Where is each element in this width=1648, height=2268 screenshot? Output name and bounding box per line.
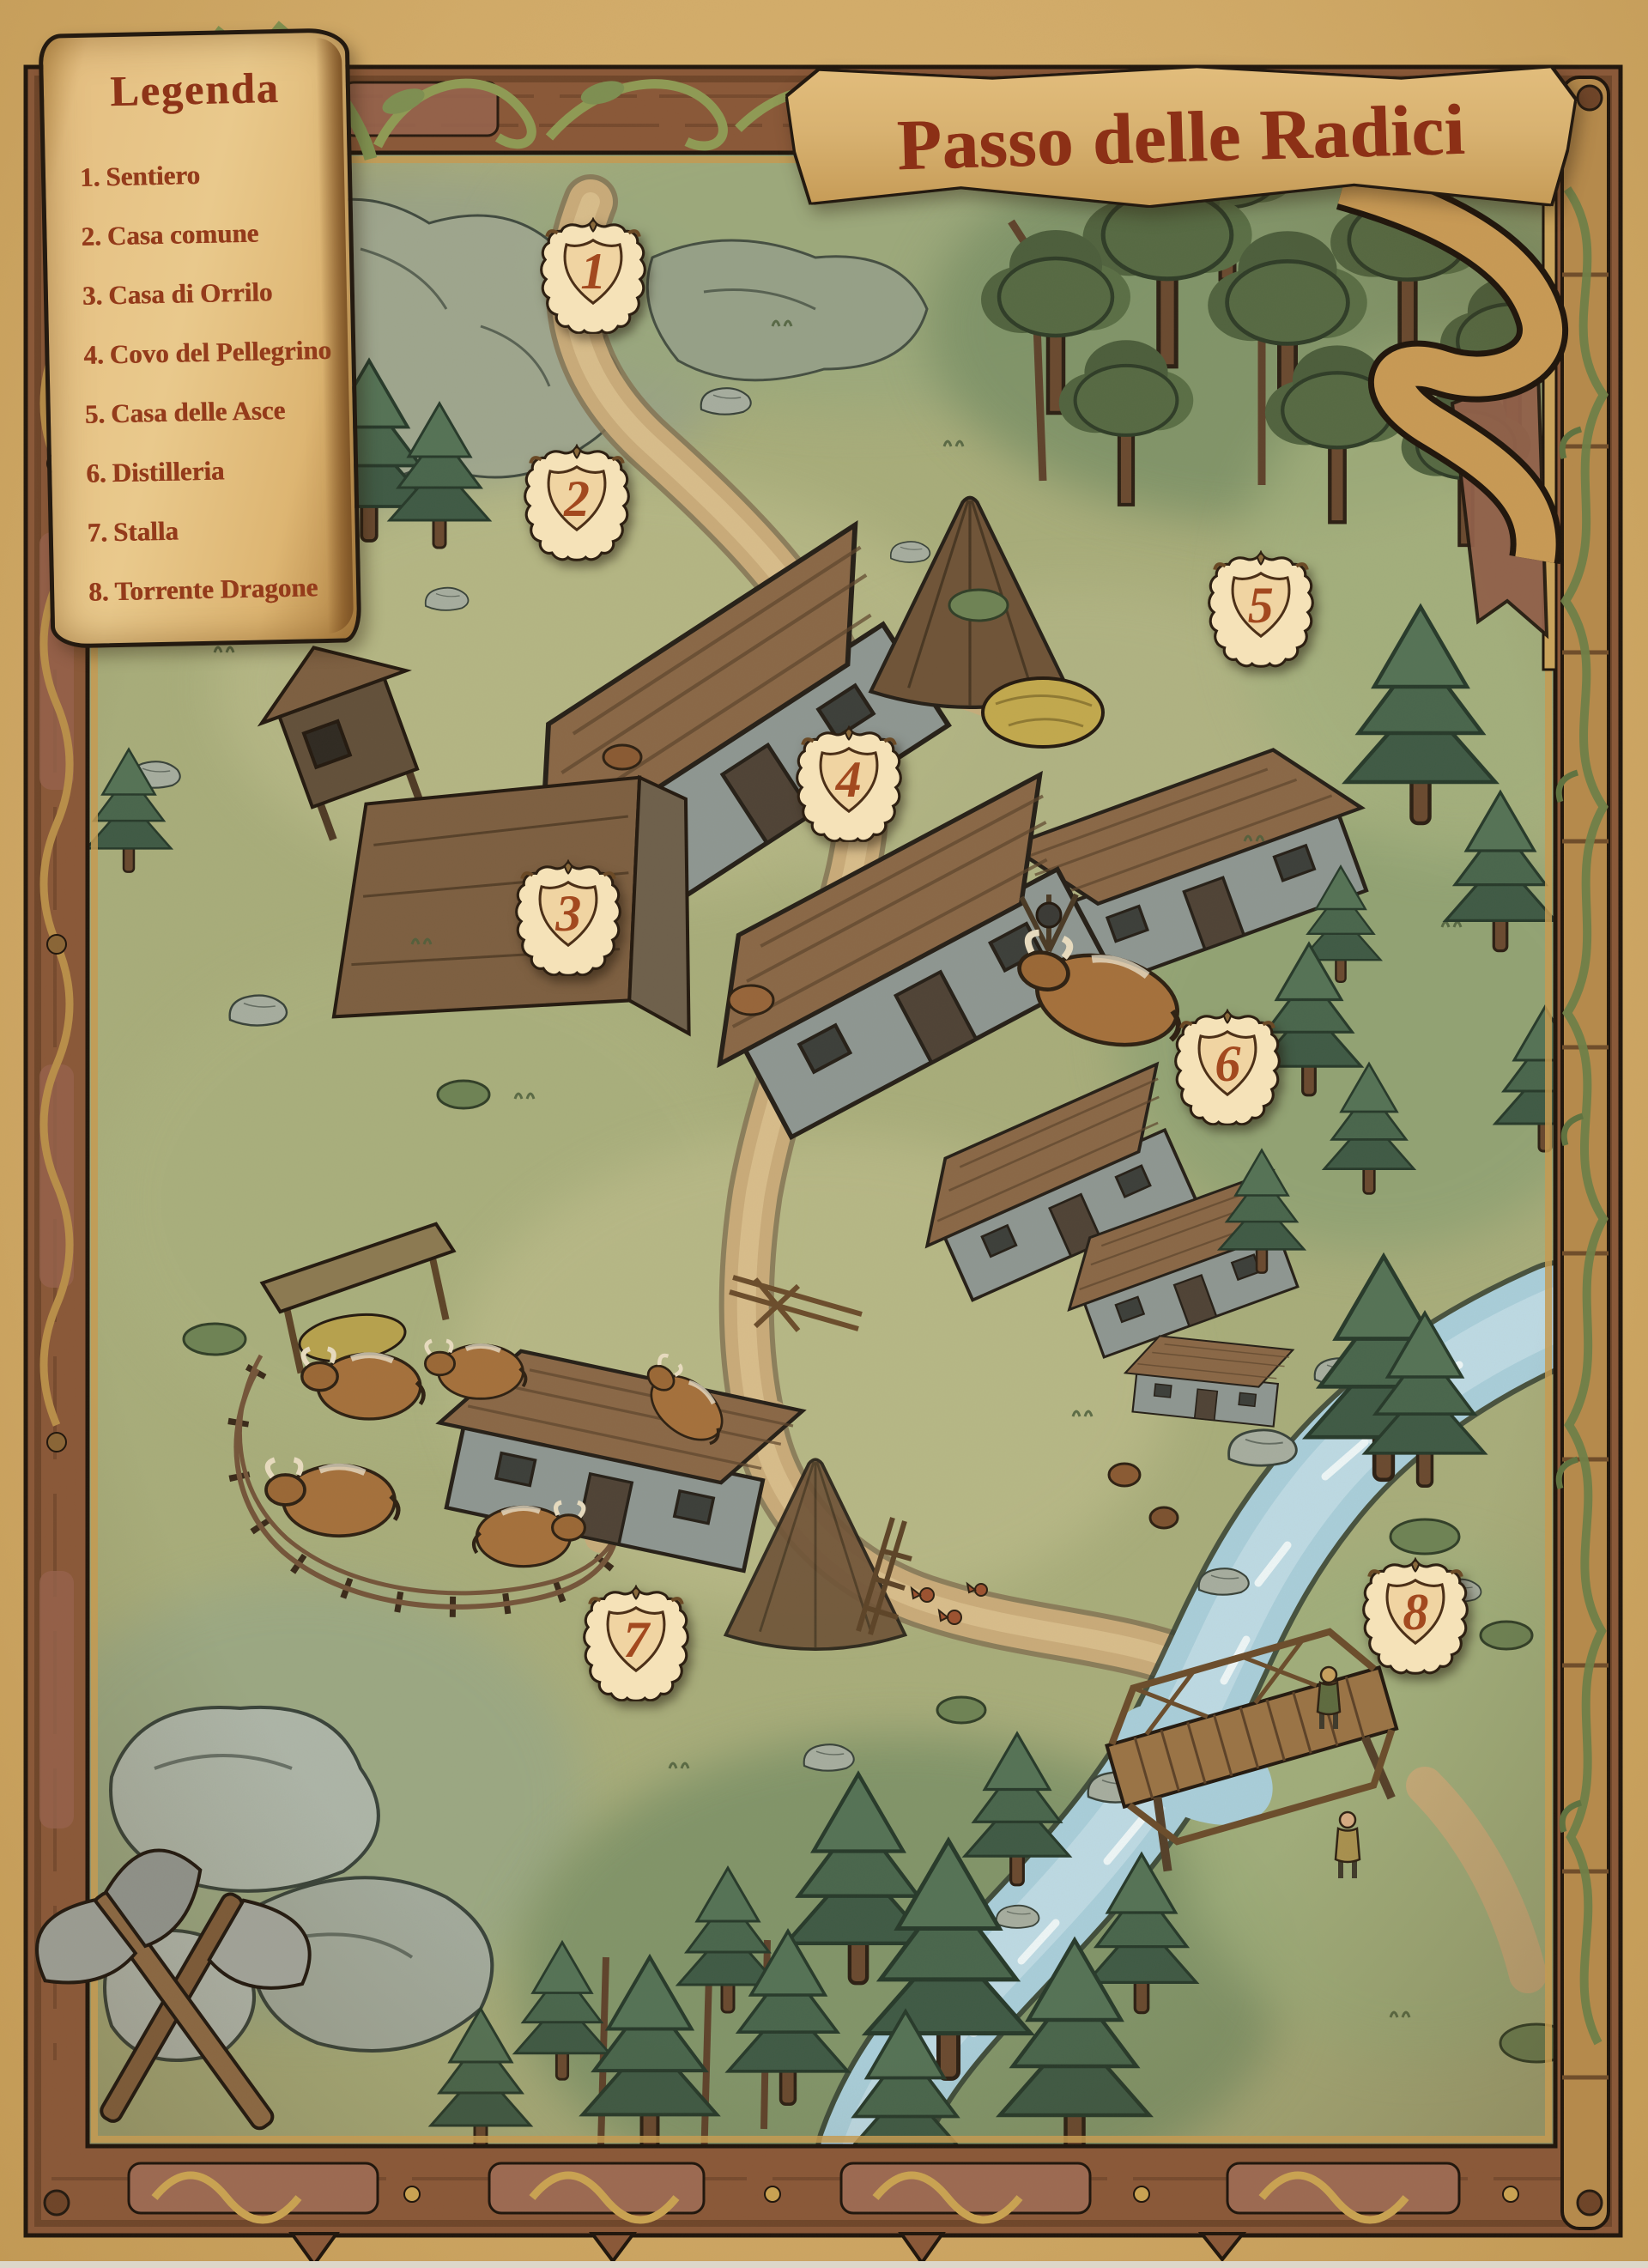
legend-scroll: Legenda 1.Sentiero 2.Casa comune 3.Casa …: [39, 27, 362, 648]
legend-item-7: 7.Stalla: [87, 498, 330, 562]
legend-item-5: 5.Casa delle Asce: [84, 379, 327, 444]
marker-number: 6: [1174, 1021, 1281, 1107]
legend-item-8: 8.Torrente Dragone: [88, 557, 330, 622]
marker-number: 1: [540, 229, 646, 315]
legend-title: Legenda: [43, 61, 346, 117]
fantasy-map-page: Legenda 1.Sentiero 2.Casa comune 3.Casa …: [0, 0, 1648, 2268]
marker-number: 5: [1208, 562, 1314, 648]
marker-number: 4: [796, 737, 902, 823]
map-marker-7[interactable]: 7: [583, 1585, 689, 1701]
legend-item-2: 2.Casa comune: [81, 202, 324, 266]
legend-item-3: 3.Casa di Orrilo: [82, 261, 324, 325]
map-marker-6[interactable]: 6: [1174, 1009, 1281, 1125]
marker-number: 7: [583, 1597, 689, 1683]
marker-number: 3: [515, 871, 621, 957]
legend-item-6: 6.Distilleria: [86, 439, 329, 503]
legend-item-1: 1.Sentiero: [79, 143, 322, 207]
legend-list: 1.Sentiero 2.Casa comune 3.Casa di Orril…: [45, 142, 356, 622]
marker-number: 2: [524, 456, 630, 542]
marker-number: 8: [1362, 1569, 1469, 1655]
legend-item-4: 4.Covo del Pellegrino: [83, 320, 326, 385]
title-banner: Passo delle Radici: [788, 65, 1574, 209]
map-marker-2[interactable]: 2: [524, 444, 630, 561]
map-marker-4[interactable]: 4: [796, 725, 902, 842]
map-marker-8[interactable]: 8: [1362, 1557, 1469, 1674]
map-marker-1[interactable]: 1: [540, 217, 646, 334]
map-title: Passo delle Radici: [786, 54, 1576, 221]
map-marker-5[interactable]: 5: [1208, 550, 1314, 667]
map-marker-3[interactable]: 3: [515, 859, 621, 976]
page-edge: [0, 2261, 1648, 2268]
